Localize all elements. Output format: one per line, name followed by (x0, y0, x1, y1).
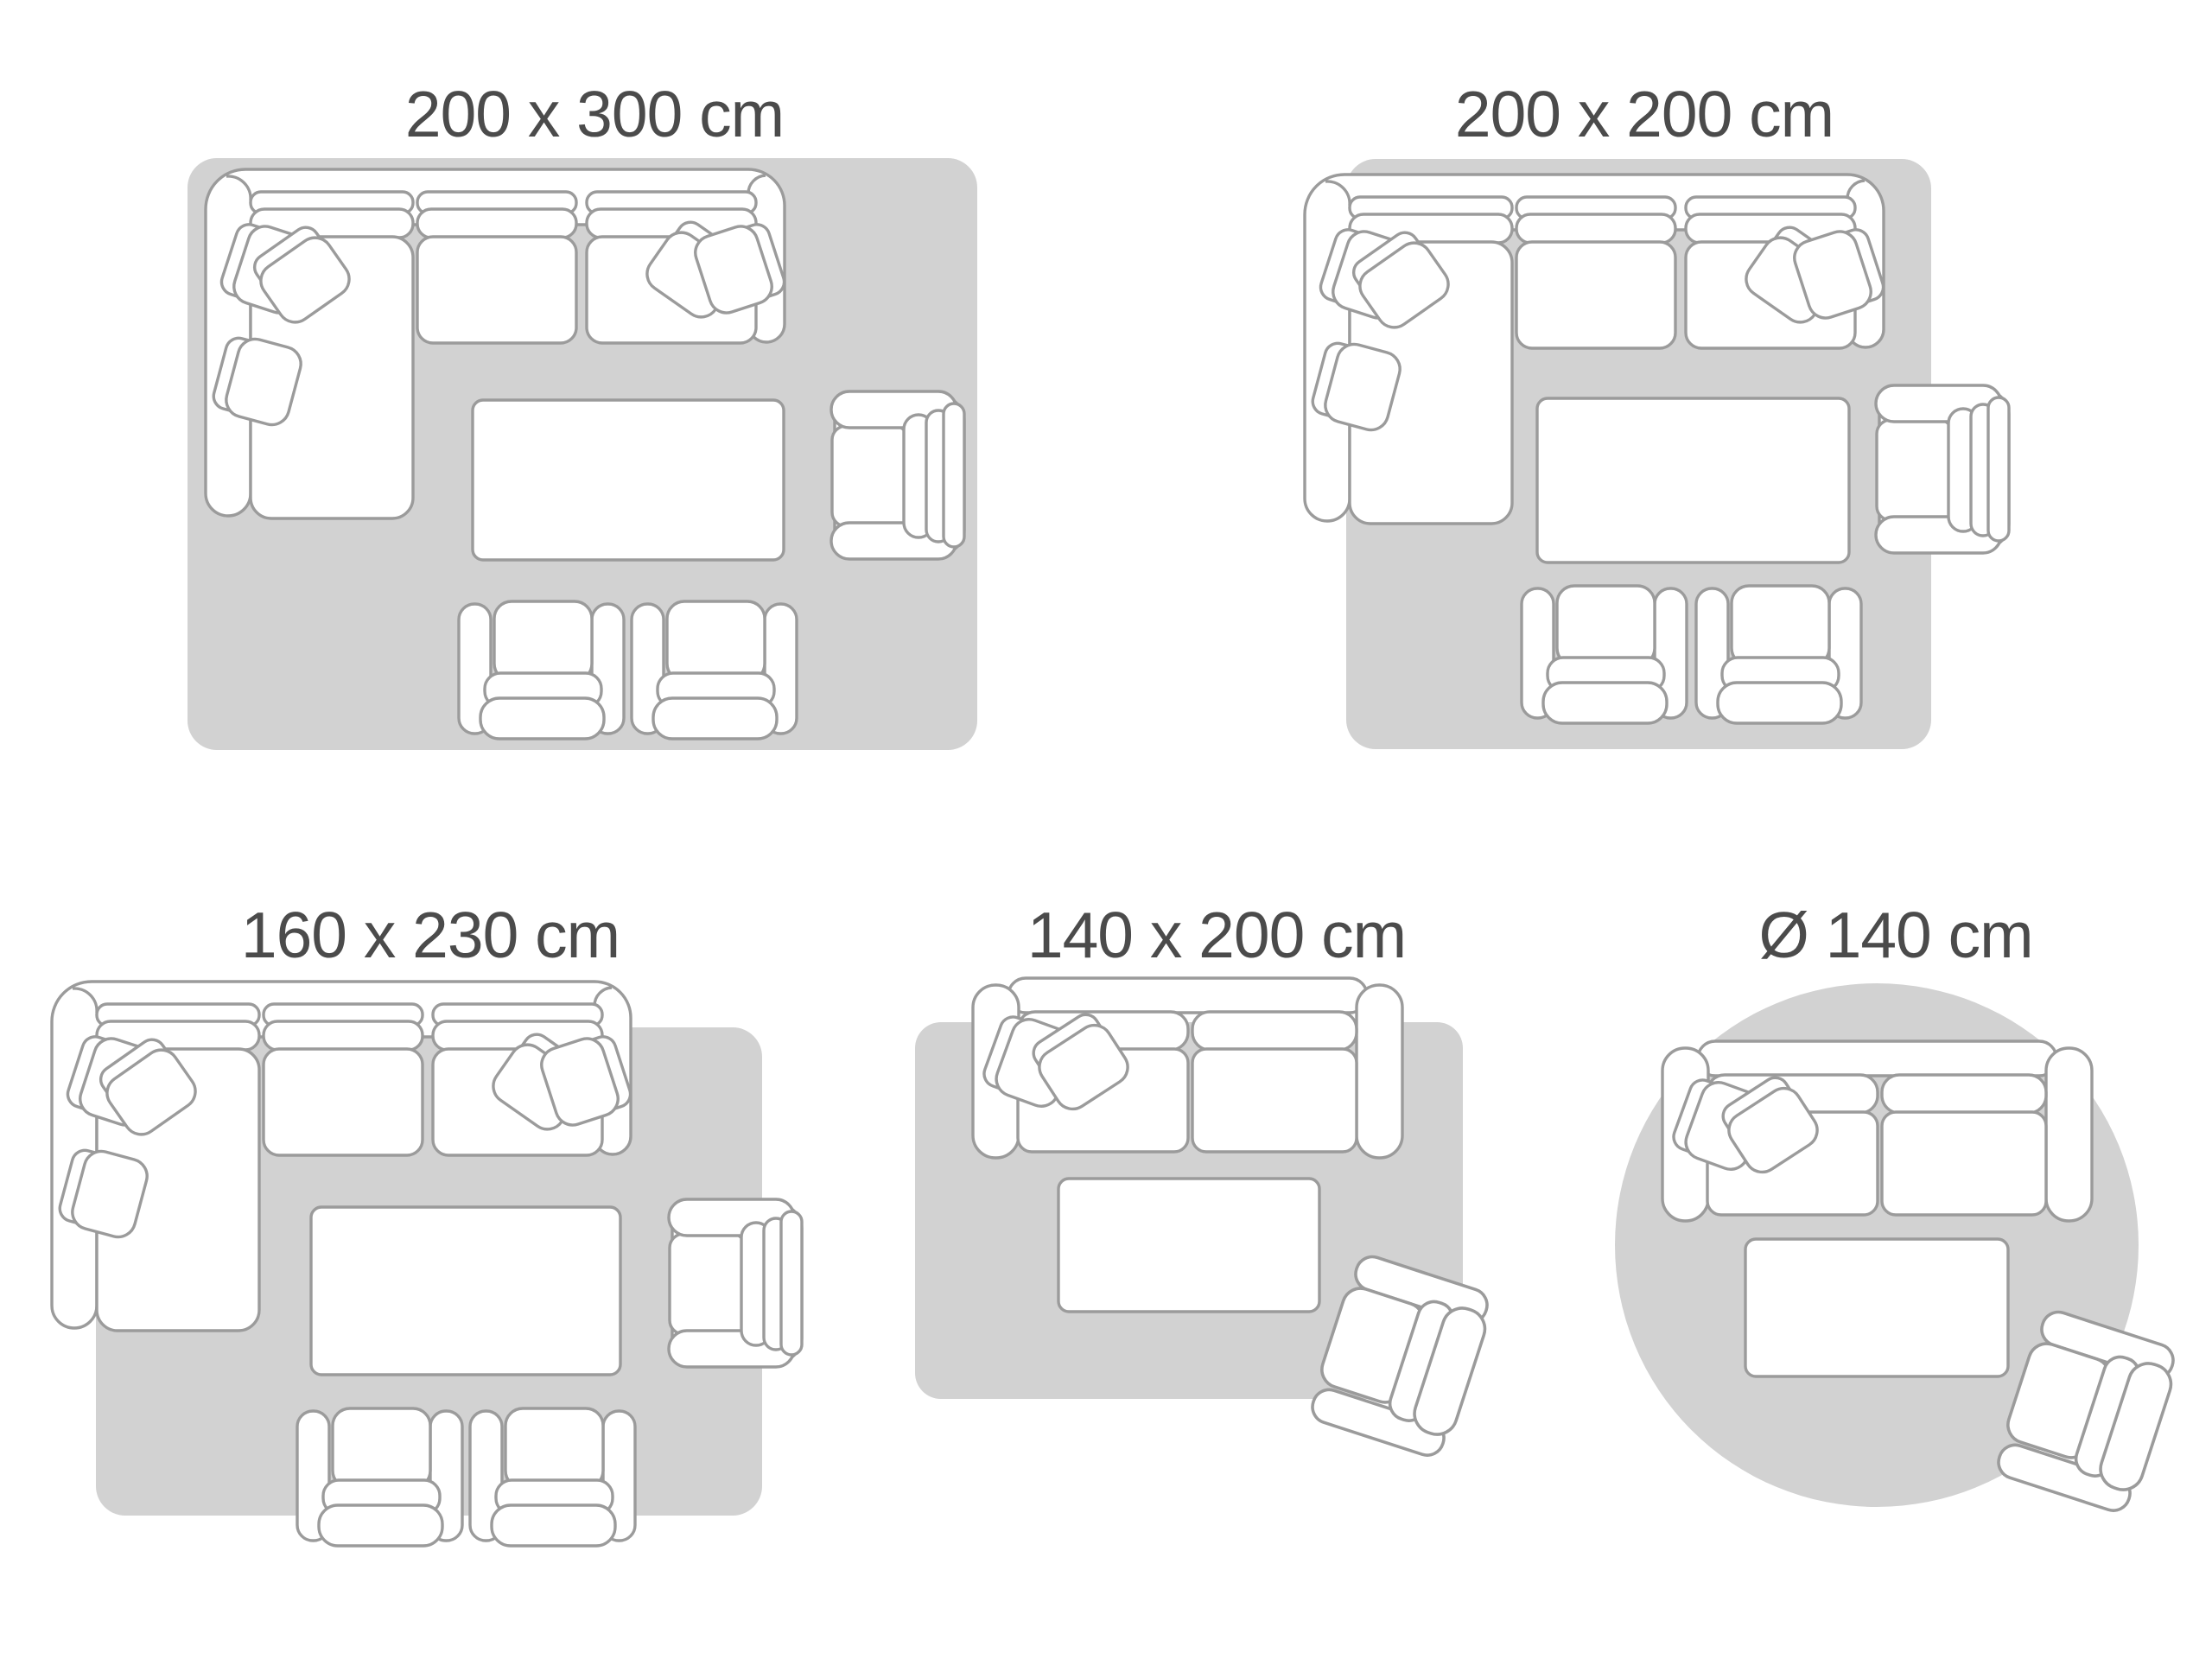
svg-text:160 x 230 cm: 160 x 230 cm (241, 899, 620, 971)
svg-text:Ø 140 cm: Ø 140 cm (1758, 899, 2032, 971)
svg-text:140 x 200 cm: 140 x 200 cm (1027, 899, 1406, 971)
svg-text:200 x 300 cm: 200 x 300 cm (405, 78, 784, 150)
svg-text:200 x 200 cm: 200 x 200 cm (1455, 78, 1834, 150)
